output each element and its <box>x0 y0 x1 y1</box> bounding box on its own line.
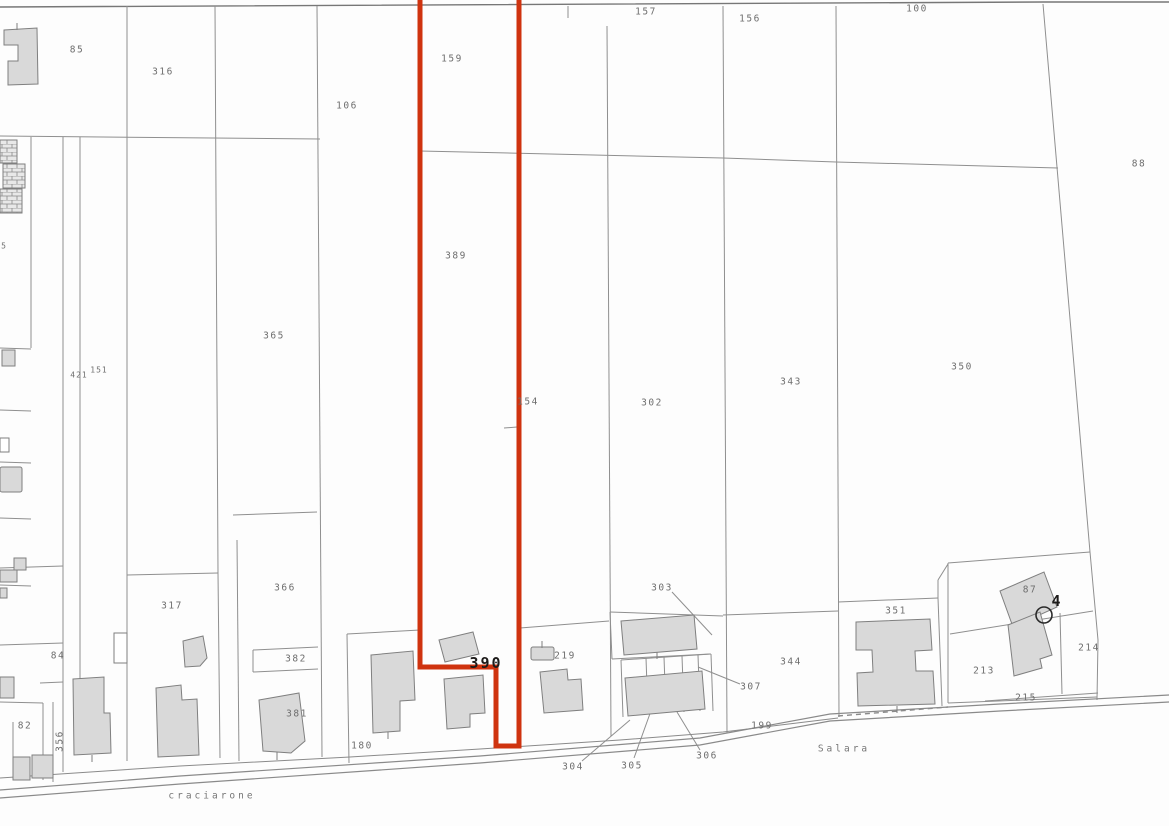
building-303 <box>621 615 697 655</box>
map-canvas <box>0 0 1169 826</box>
buildings <box>0 23 1057 780</box>
building-390-b <box>444 675 485 729</box>
parcel-boundary-lines <box>0 2 1169 782</box>
building-351 <box>856 619 935 706</box>
brick-buildings <box>0 140 25 213</box>
building-390-a <box>439 632 479 662</box>
building-381 <box>259 693 305 753</box>
building-85 <box>4 28 38 85</box>
building-row-304-307 <box>625 671 705 716</box>
cadastral-map: 8531610615915715610088389365421151154302… <box>0 0 1169 826</box>
building-84 <box>73 677 111 755</box>
building-180 <box>371 651 415 733</box>
